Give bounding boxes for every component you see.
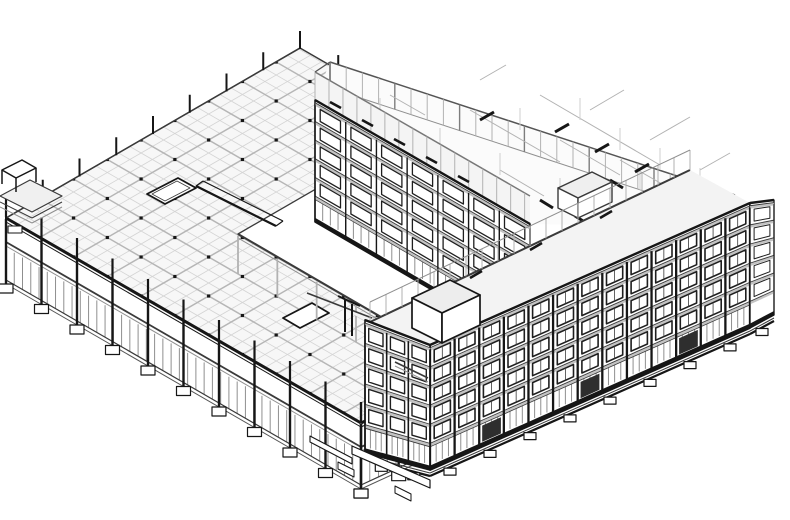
east-return-facade [750, 200, 774, 328]
southeast-wing-end-facade [365, 320, 430, 470]
axonometric-3d-view [0, 0, 790, 520]
drawing-canvas [0, 0, 790, 520]
